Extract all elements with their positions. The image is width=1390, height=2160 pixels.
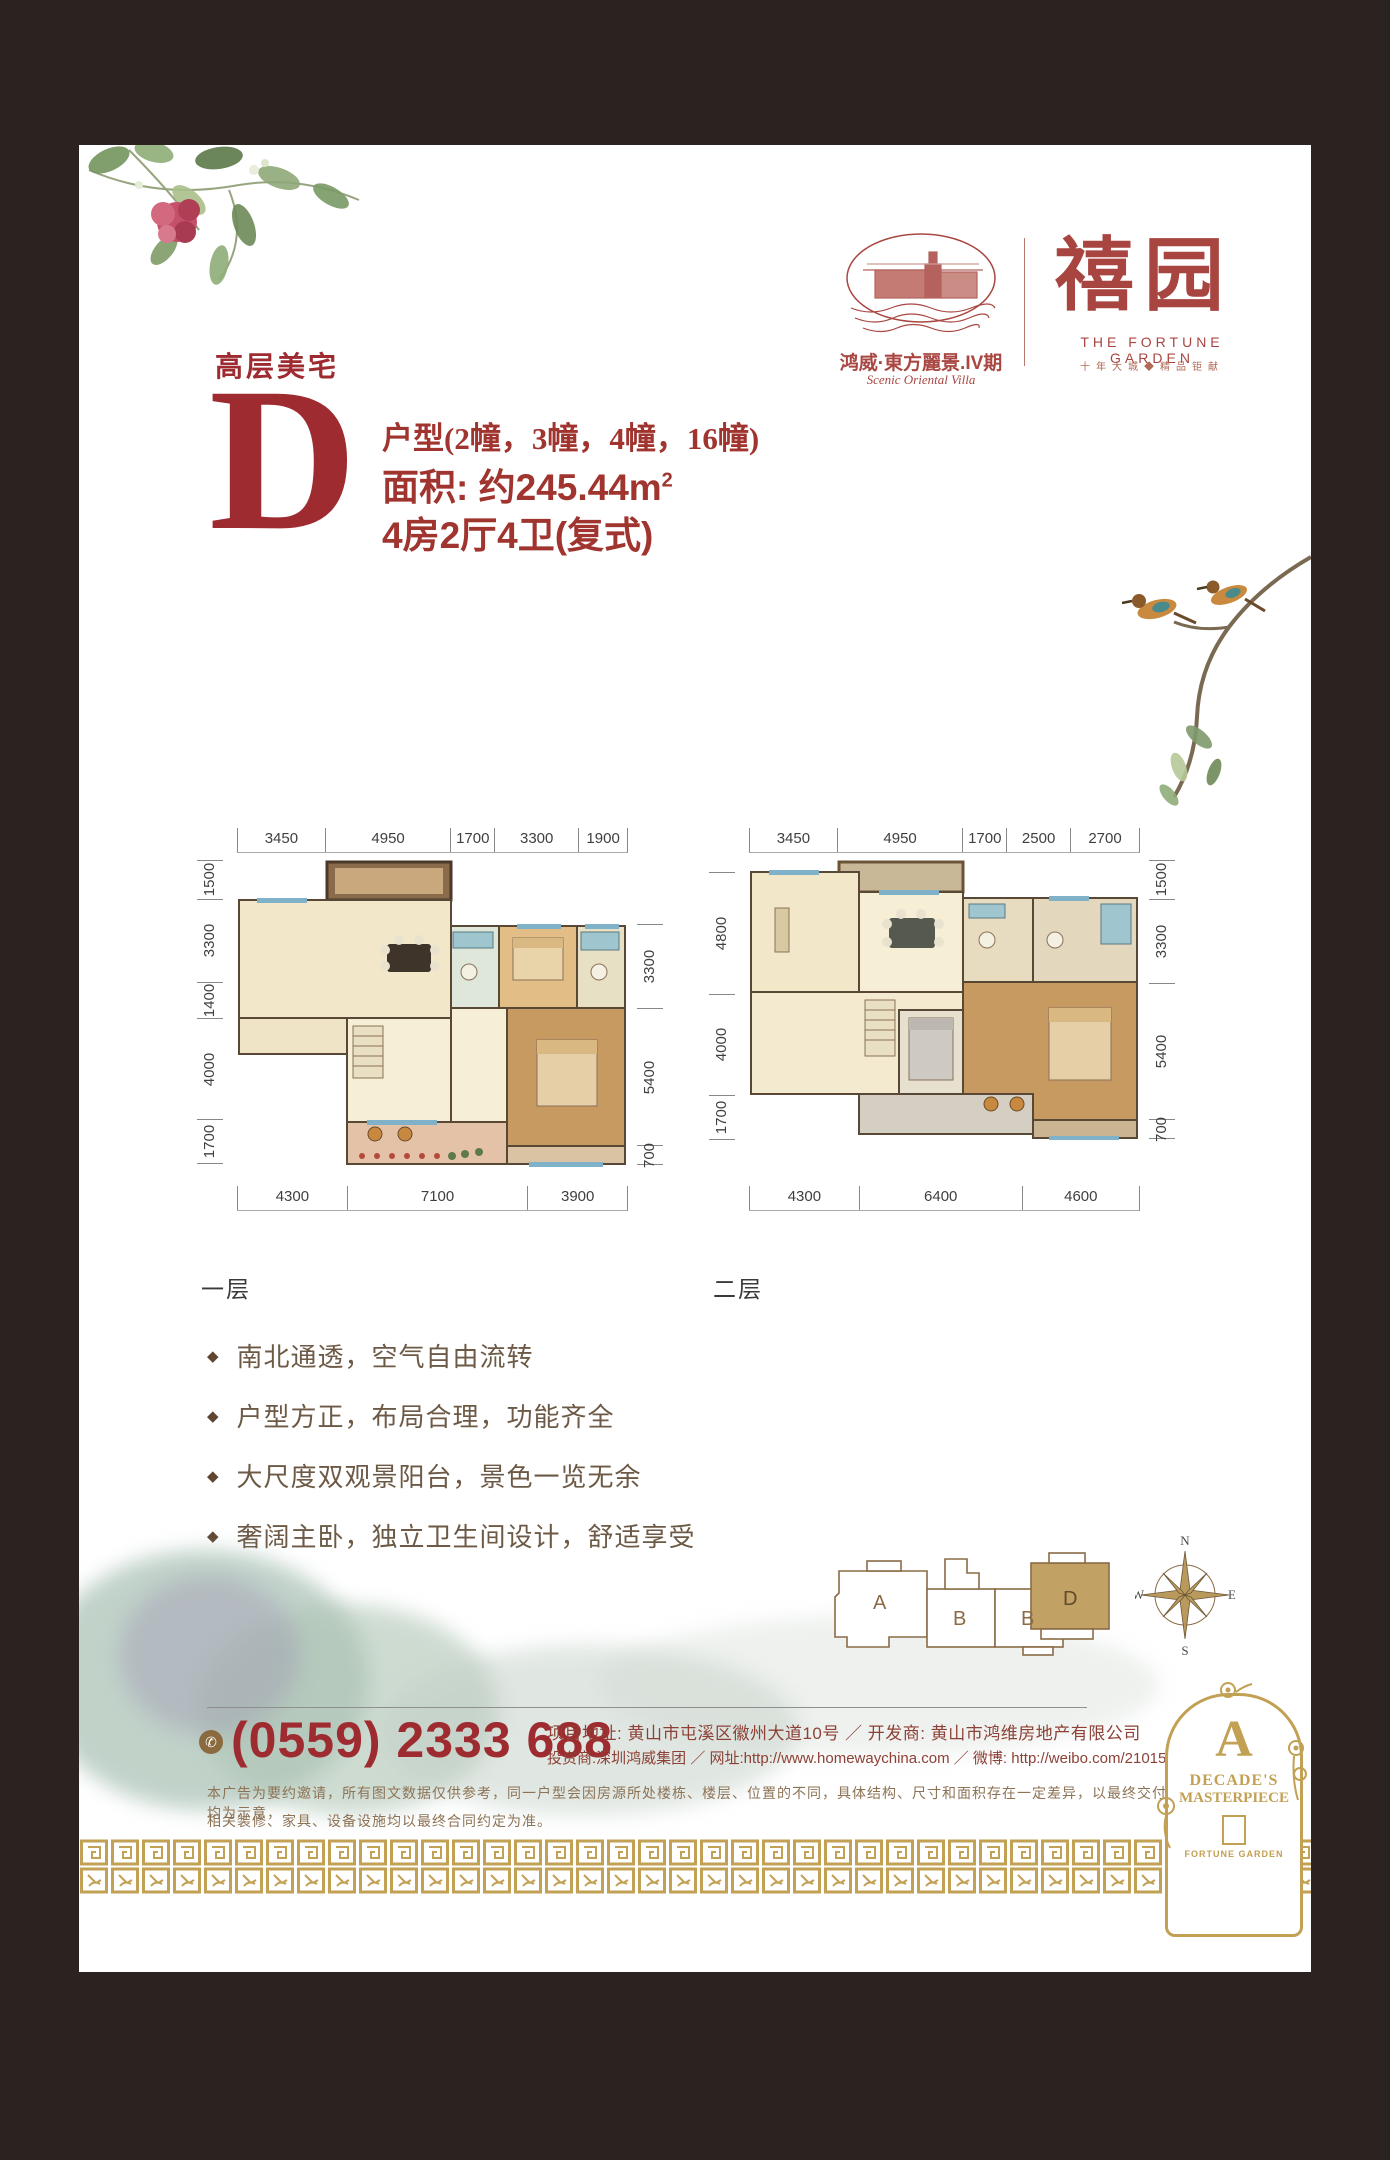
feature-list: ◆南北通透，空气自由流转 ◆户型方正，布局合理，功能齐全 ◆大尺度双观景阳台，景… [207, 1337, 696, 1577]
logo-divider [1024, 238, 1025, 366]
compass-south-label: S [1181, 1643, 1188, 1658]
dim-label: 1500 [1154, 863, 1171, 896]
floor2-dims-left: 4800 4000 1700 [709, 872, 735, 1140]
floor-plan-2-graphic [749, 860, 1139, 1140]
project-address-line: 项目地址: 黄山市屯溪区徽州大道10号 ／ 开发商: 黄山市鸿维房地产有限公司 [547, 1719, 1141, 1744]
dim-label: 4300 [749, 1186, 859, 1210]
dim-label: 4000 [714, 1028, 731, 1061]
unit-b1-label: B [953, 1608, 966, 1630]
dim-label: 4950 [325, 828, 451, 852]
dim-label: 2700 [1070, 828, 1139, 852]
dim-label: 6400 [859, 1186, 1022, 1210]
area-text: 面积: 约245.44m [382, 467, 662, 508]
floor1-dims-bottom: 4300 7100 3900 [237, 1186, 628, 1211]
unit-rooms-line: 4房2厅4卫(复式) [382, 505, 653, 559]
ornament-line3: FORTUNE GARDEN [1168, 1849, 1300, 1859]
dim-label: 1400 [202, 984, 219, 1017]
compass-east-label: E [1228, 1587, 1235, 1602]
diamond-bullet-icon: ◆ [207, 1527, 219, 1545]
compass-north-label: N [1180, 1533, 1190, 1548]
dim-label: 1700 [450, 828, 494, 852]
floor2-label: 二层 [713, 1270, 763, 1304]
dim-label: 3300 [494, 828, 578, 852]
floor-plan-2: 3450 4950 1700 2500 2700 4800 4000 1700 … [691, 810, 1181, 1350]
floor1-label: 一层 [201, 1270, 251, 1304]
unit-letter: D [209, 357, 357, 562]
left-logo-name: 鸿威·東方麗景.IV期 [831, 348, 1011, 375]
floor-plan-1-graphic [237, 860, 627, 1170]
compass-west-label: W [1135, 1587, 1145, 1602]
dim-label: 1500 [202, 863, 219, 896]
area-superscript: 2 [662, 470, 673, 492]
dim-label: 4000 [202, 1053, 219, 1086]
compass-rose: N S E W [1135, 1533, 1235, 1658]
diamond-bullet-icon: ◆ [207, 1467, 219, 1485]
floor2-dims-bottom: 4300 6400 4600 [749, 1186, 1140, 1211]
dim-label: 1700 [962, 828, 1006, 852]
poster-page: 鸿威·東方麗景.IV期 Scenic Oriental Villa 禧园 THE… [79, 145, 1311, 1972]
dim-label: 4950 [837, 828, 963, 852]
unit-type-line: 户型(2幢，3幢，4幢，16幢) [382, 413, 759, 458]
left-logo-subtitle: Scenic Oriental Villa [831, 372, 1011, 388]
fortune-garden-slogan: 十年大城◆精品钜献 [1047, 358, 1257, 373]
feature-item: ◆大尺度双观景阳台，景色一览无余 [207, 1457, 696, 1494]
estate-building-logo-icon [833, 230, 1009, 346]
feature-text: 南北通透，空气自由流转 [237, 1337, 534, 1374]
dim-label: 700 [642, 1143, 659, 1168]
floor1-dims-left: 1500 3300 1400 4000 1700 [197, 860, 223, 1164]
diamond-bullet-icon: ◆ [207, 1407, 219, 1425]
masterpiece-ornament: A DECADE'S MASTERPIECE FORTUNE GARDEN [1165, 1693, 1303, 1937]
bird-1 [1122, 594, 1196, 623]
dim-label: 4800 [714, 917, 731, 950]
floor1-dims-top: 3450 4950 1700 3300 1900 [237, 828, 628, 853]
floor-plan-1: 3450 4950 1700 3300 1900 1500 3300 1400 … [179, 810, 669, 1350]
dim-label: 1700 [202, 1125, 219, 1158]
unit-b2-label: B [1021, 1608, 1034, 1630]
dim-label: 2500 [1006, 828, 1070, 852]
gold-meander-border [79, 1838, 1311, 1896]
brand-header: 鸿威·東方麗景.IV期 Scenic Oriental Villa 禧园 THE… [819, 230, 1259, 395]
ornament-flower-icon [1152, 1792, 1182, 1852]
unit-area-line: 面积: 约245.44m2 [382, 457, 673, 511]
dim-label: 3900 [527, 1186, 627, 1210]
ornament-flower-icon [1214, 1678, 1254, 1702]
building-site-plan: A B B D [827, 1537, 1112, 1657]
diamond-bullet-icon: ◆ [207, 1347, 219, 1365]
ornament-flower-icon [1280, 1736, 1310, 1806]
dim-label: 1900 [578, 828, 627, 852]
unit-d-label: D [1063, 1588, 1077, 1610]
dim-label: 3450 [749, 828, 837, 852]
dim-label: 4300 [237, 1186, 347, 1210]
dim-label: 7100 [347, 1186, 528, 1210]
fortune-garden-logo: 禧园 [1054, 236, 1234, 316]
dim-label: 1700 [714, 1101, 731, 1134]
feature-item: ◆户型方正，布局合理，功能齐全 [207, 1397, 696, 1434]
dim-label: 3300 [642, 950, 659, 983]
dim-label: 700 [1154, 1117, 1171, 1142]
feature-text: 奢阔主卧，独立卫生间设计，舒适享受 [237, 1517, 696, 1554]
dim-label: 3450 [237, 828, 325, 852]
feature-item: ◆南北通透，空气自由流转 [207, 1337, 696, 1374]
feature-item: ◆奢阔主卧，独立卫生间设计，舒适享受 [207, 1517, 696, 1554]
poster-canvas: { "header": { "tagline": "高层美宅", "unit_l… [0, 0, 1390, 2160]
dim-label: 5400 [642, 1061, 659, 1094]
divider-rule [207, 1707, 1087, 1708]
feature-text: 户型方正，布局合理，功能齐全 [237, 1397, 615, 1434]
ornament-seal-box [1222, 1815, 1246, 1845]
dim-label: 3300 [202, 924, 219, 957]
unit-a-label: A [873, 1592, 887, 1614]
phone-icon: ✆ [199, 1730, 223, 1754]
floor2-dims-right: 1500 3300 5400 700 [1149, 860, 1175, 1139]
floor1-dims-right: 3300 5400 700 [637, 924, 663, 1165]
floral-decoration [79, 145, 379, 315]
dim-label: 3300 [1154, 924, 1171, 957]
disclaimer-line-2: 相关装修、家具、设备设施均以最终合同约定为准。 [207, 1811, 552, 1831]
dim-label: 5400 [1154, 1035, 1171, 1068]
floor2-dims-top: 3450 4950 1700 2500 2700 [749, 828, 1140, 853]
birds-branch-decoration [1079, 547, 1311, 812]
investor-website-line: 投资商:深圳鸿威集团 ／ 网址:http://www.homewaychina.… [547, 1747, 1208, 1768]
feature-text: 大尺度双观景阳台，景色一览无余 [237, 1457, 642, 1494]
dim-label: 4600 [1022, 1186, 1139, 1210]
